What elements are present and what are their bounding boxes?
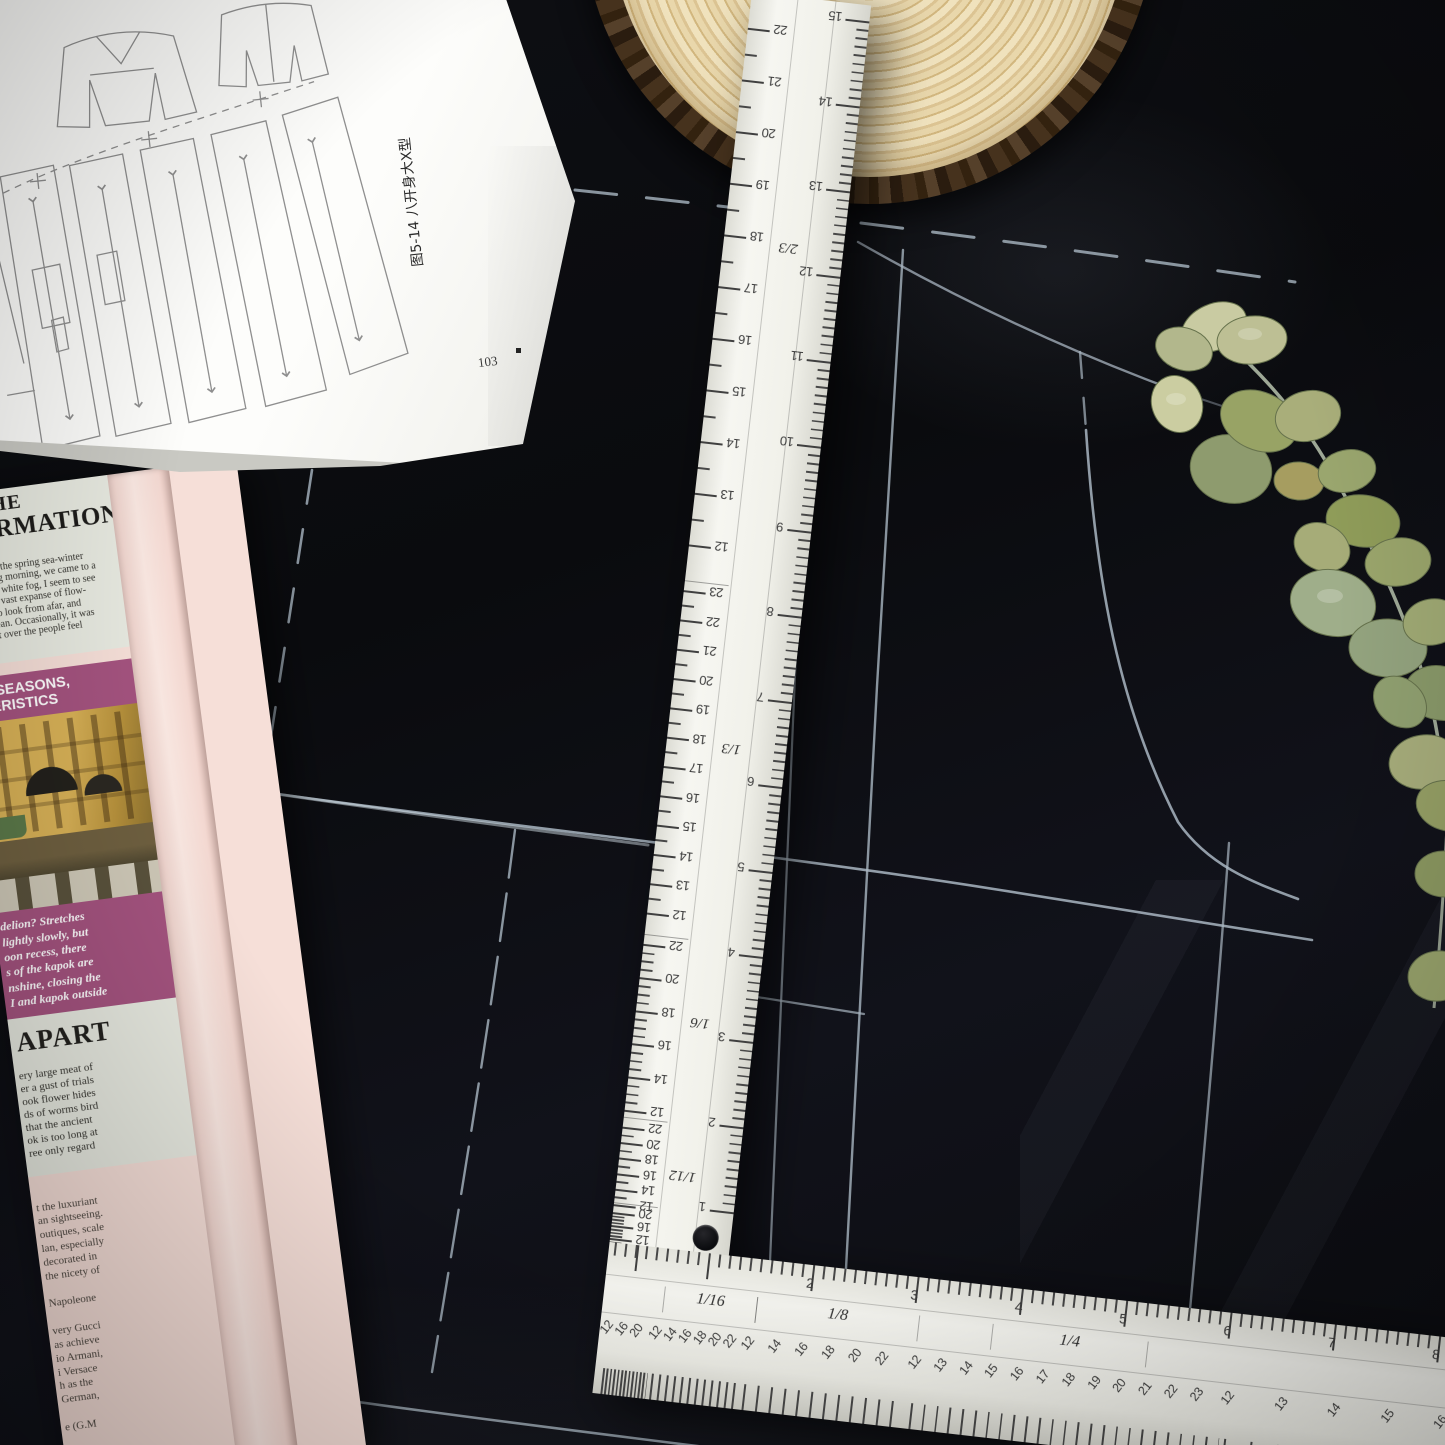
rivet-hole xyxy=(691,1223,720,1252)
sewing-table-scene: G THE FFIRMATION unity, I saw the spring… xyxy=(0,0,1445,1445)
